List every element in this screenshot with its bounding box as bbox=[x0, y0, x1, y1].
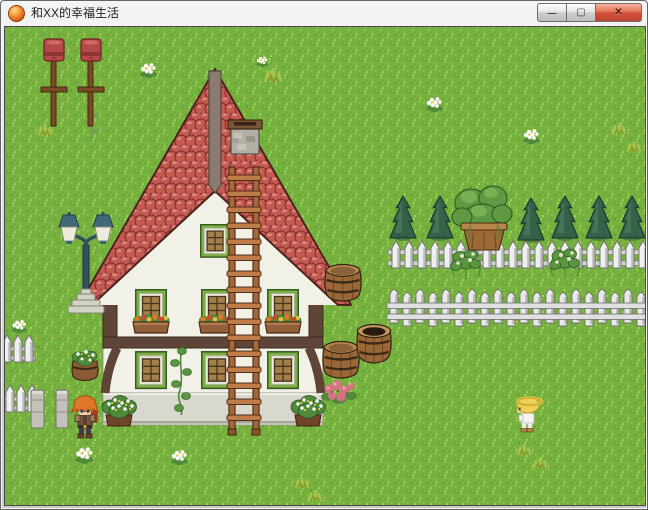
close-icon: ✕ bbox=[614, 7, 622, 18]
game-window: 和XX的幸福生活 — ▢ ✕ bbox=[0, 0, 648, 510]
wooden-barrel bbox=[323, 342, 359, 379]
timber-beam bbox=[103, 337, 323, 348]
wooden-barrel bbox=[325, 265, 361, 302]
stone-chimney bbox=[228, 120, 262, 154]
lower-window bbox=[136, 352, 167, 389]
corner-flower-bush bbox=[102, 396, 137, 427]
stone-pillar bbox=[31, 390, 44, 428]
lower-window bbox=[268, 352, 299, 389]
corner-flower-bush bbox=[291, 396, 326, 427]
game-viewport bbox=[4, 26, 646, 506]
maximize-button[interactable]: ▢ bbox=[567, 3, 596, 22]
window-flower-box bbox=[133, 315, 170, 334]
maximize-icon: ▢ bbox=[576, 7, 585, 18]
stone-pillar bbox=[56, 390, 68, 428]
game-scene bbox=[5, 27, 645, 505]
app-orange-orb-icon bbox=[8, 5, 25, 22]
window-flower-box bbox=[265, 315, 302, 334]
barrel-planter bbox=[72, 350, 98, 380]
close-button[interactable]: ✕ bbox=[596, 3, 642, 22]
window-controls: — ▢ ✕ bbox=[537, 3, 642, 22]
left-fence-segment bbox=[5, 335, 35, 362]
open-barrel bbox=[357, 325, 391, 364]
window-title: 和XX的幸福生活 bbox=[31, 1, 119, 26]
minimize-icon: — bbox=[548, 8, 557, 18]
ridge-board bbox=[209, 71, 221, 193]
minimize-button[interactable]: — bbox=[537, 3, 567, 22]
gable-window bbox=[201, 225, 230, 257]
